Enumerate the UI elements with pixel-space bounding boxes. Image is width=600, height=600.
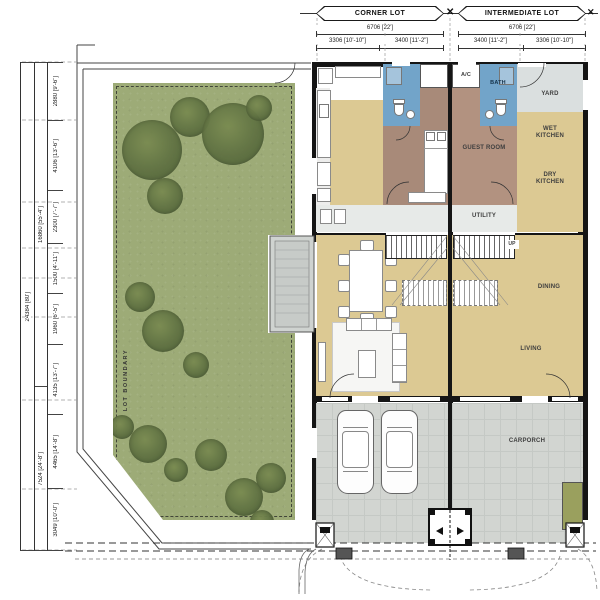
dimension-segment: 1500 [4'-11"] [48, 243, 63, 293]
dimension-segment: 1960 [6'-5"] [48, 293, 63, 344]
dim-column-groups: 16860 [55'-4"]7524 [24'-8"] [34, 62, 47, 551]
dimension-segment: 4465 [14'-8"] [48, 414, 63, 487]
boundary-x-icon: ✕ [587, 8, 595, 17]
dimension-segment: 2300 [7'-7"] [48, 190, 63, 243]
dining-label: DINING [528, 283, 570, 293]
carporch-label: CARPORCH [500, 437, 554, 447]
corner-lot-tag: CORNER LOT [316, 6, 444, 21]
dimension-segment: 3049 [10'-0"] [48, 488, 63, 550]
living-label: LIVING [510, 345, 552, 355]
guest-room-label: GUEST ROOM [462, 140, 506, 158]
dim-seg: 3306 [10'-10"] [523, 38, 586, 44]
wet-kitchen-label: WET KITCHEN [531, 124, 569, 142]
dimension-segment: 24384 [80'] [21, 62, 34, 550]
yard-label: YARD [522, 90, 578, 100]
dim-seg: 3400 [11'-2"] [458, 38, 523, 44]
floor-plan: CORNER LOT ✕ INTERMEDIATE LOT ✕ 6706 [22… [0, 0, 600, 600]
dimension-segment: 7524 [24'-8"] [35, 386, 47, 550]
stairs-up-label: UP [505, 240, 519, 249]
dim-seg: 3400 [11'-2"] [379, 38, 444, 44]
intermediate-lot-label: INTERMEDIATE LOT [459, 7, 585, 20]
corner-lot-label: CORNER LOT [317, 7, 443, 20]
ac-label: A/C [452, 66, 480, 84]
dimension-segment: 2880 [9'-6"] [48, 62, 63, 120]
bath-label: BATH [482, 78, 514, 88]
dim-corner-total: 6706 [22'] [316, 25, 444, 31]
dim-column-segments: 2880 [9'-6"]4106 [13'-6"]2300 [7'-7"]150… [47, 62, 63, 551]
dim-seg: 3306 [10'-10"] [316, 38, 379, 44]
lot-boundary-caption: LOT BOUNDARY [120, 320, 131, 440]
dim-intermediate-total: 6706 [22'] [458, 25, 586, 31]
boundary-x-icon: ✕ [446, 8, 454, 18]
dim-column-overall: 24384 [80'] [20, 62, 34, 551]
dimension-segment: 4135 [13'-7"] [48, 344, 63, 415]
dimension-segment: 16860 [55'-4"] [35, 62, 47, 386]
intermediate-lot-tag: INTERMEDIATE LOT [458, 6, 586, 21]
dimension-segment: 4106 [13'-6"] [48, 120, 63, 191]
site-linework [0, 0, 600, 600]
dry-kitchen-label: DRY KITCHEN [531, 170, 569, 188]
utility-label: UTILITY [460, 212, 508, 222]
